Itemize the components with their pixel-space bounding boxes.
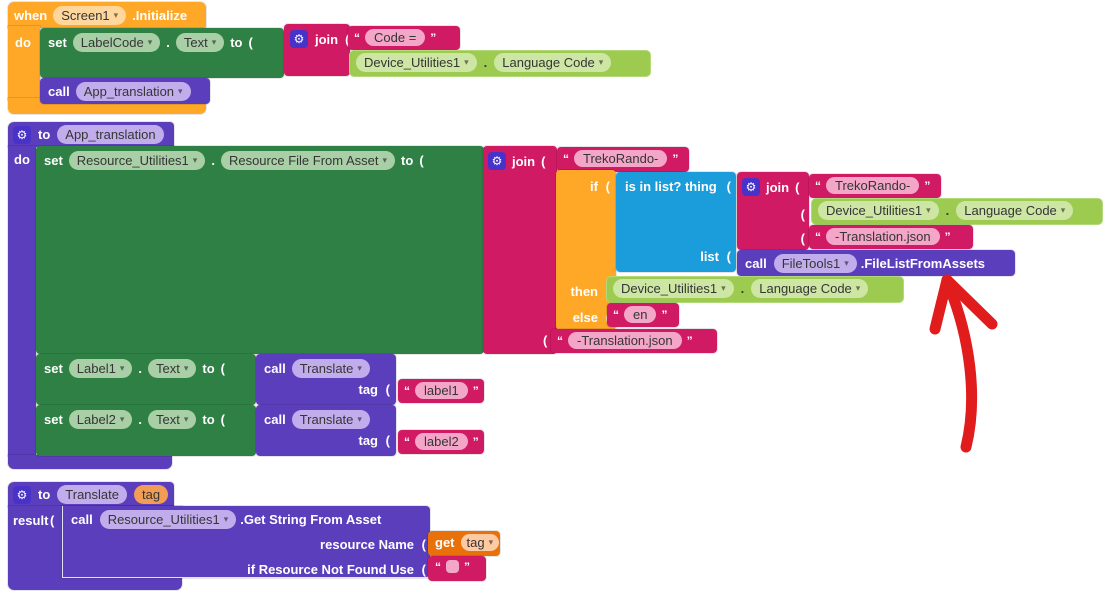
when-label: when: [14, 9, 47, 22]
set-label: set: [44, 362, 63, 375]
string-value[interactable]: Code =: [365, 29, 425, 46]
chevron-down-icon: ▾: [178, 87, 183, 96]
component-dropdown[interactable]: Resource_Utilities1 ▾: [100, 510, 237, 529]
procedure-dropdown[interactable]: App_translation ▾: [76, 82, 191, 101]
dot-separator: .: [741, 281, 745, 296]
to-label: to: [202, 413, 214, 426]
chevron-down-icon: ▾: [464, 58, 469, 67]
chevron-down-icon: ▾: [489, 538, 494, 547]
chevron-down-icon: ▾: [224, 515, 229, 524]
do-label: do: [14, 153, 30, 166]
mutator-gear-icon[interactable]: ⚙: [488, 152, 506, 170]
property-dropdown[interactable]: Language Code ▾: [751, 279, 868, 298]
socket-paren: (: [801, 208, 805, 221]
component-dropdown[interactable]: Device_Utilities1 ▾: [356, 53, 477, 72]
mutator-gear-icon[interactable]: ⚙: [13, 126, 31, 144]
socket-paren: (: [422, 538, 426, 551]
close-quote: ”: [924, 180, 930, 192]
string-en-block[interactable]: “ en ”: [607, 303, 679, 327]
chevron-down-icon: ▾: [193, 156, 198, 165]
dot-separator: .: [484, 55, 488, 70]
property-dropdown[interactable]: Text ▾: [148, 359, 196, 378]
component-dropdown[interactable]: Label2 ▾: [69, 410, 133, 429]
dot-separator: .: [166, 36, 170, 49]
close-quote: ”: [945, 231, 951, 243]
dot-separator: .: [138, 413, 142, 426]
join-block-2[interactable]: ⚙ join (: [483, 146, 557, 354]
set-labelcode-text-block[interactable]: set LabelCode ▾ . Text ▾ to (: [40, 28, 284, 78]
chevron-down-icon: ▾: [383, 156, 388, 165]
component-dropdown[interactable]: Device_Utilities1 ▾: [613, 279, 734, 298]
procedure-app-translation-header[interactable]: ⚙ to App_translation: [8, 122, 174, 147]
dot-separator: .: [946, 203, 950, 218]
set-label: set: [44, 413, 63, 426]
open-quote: “: [435, 561, 441, 573]
mutator-gear-icon[interactable]: ⚙: [742, 178, 760, 196]
procedure-dropdown[interactable]: Translate ▾: [292, 359, 370, 378]
property-dropdown[interactable]: Text ▾: [176, 33, 224, 52]
app-translation-bottom-bar[interactable]: [8, 455, 172, 469]
set-label2-text-block[interactable]: set Label2 ▾ . Text ▾ to (: [36, 405, 256, 456]
socket-paren: (: [541, 155, 545, 168]
chevron-down-icon: ▾: [357, 364, 362, 373]
string-trekorando-block[interactable]: “ TrekoRando- ”: [557, 147, 689, 172]
set-label: set: [44, 154, 63, 167]
open-quote: “: [815, 231, 821, 243]
component-dropdown[interactable]: Resource_Utilities1 ▾: [69, 151, 206, 170]
socket-paren: (: [419, 154, 423, 167]
open-quote: “: [613, 309, 619, 321]
app-translation-do-spine[interactable]: [8, 146, 36, 456]
socket-paren: (: [795, 181, 799, 194]
not-found-arg-label: if Resource Not Found Use: [247, 563, 414, 576]
open-quote: “: [354, 32, 360, 44]
call-label: call: [264, 362, 286, 375]
chevron-down-icon: ▾: [184, 364, 189, 373]
chevron-down-icon: ▾: [148, 38, 153, 47]
call-filelist-from-assets-block[interactable]: call FileTools1 ▾ .FileListFromAssets: [737, 250, 1015, 276]
event-name: .Initialize: [132, 9, 187, 22]
property-dropdown[interactable]: Text ▾: [148, 410, 196, 429]
string-value[interactable]: -Translation.json: [826, 228, 940, 245]
close-quote: ”: [687, 335, 693, 347]
chevron-down-icon: ▾: [120, 364, 125, 373]
string-value[interactable]: TrekoRando-: [574, 150, 667, 167]
socket-paren: (: [50, 514, 54, 527]
procedure-name[interactable]: Translate: [57, 485, 127, 504]
tag-arg-label: tag: [359, 383, 379, 396]
close-quote: ”: [672, 153, 678, 165]
variable-dropdown[interactable]: tag ▾: [461, 534, 500, 551]
join-block-1[interactable]: ⚙ join (: [284, 24, 350, 76]
open-quote: “: [815, 180, 821, 192]
get-tag-block[interactable]: get tag ▾: [428, 531, 500, 556]
string-value[interactable]: label2: [415, 433, 468, 450]
chevron-down-icon: ▾: [844, 259, 849, 268]
device-language-code-getter[interactable]: Device_Utilities1 ▾ . Language Code ▾: [812, 199, 1102, 224]
to-label: to: [202, 362, 214, 375]
socket-paren: (: [249, 36, 253, 49]
socket-paren: (: [543, 334, 547, 347]
if-label: if: [590, 180, 598, 193]
to-label: to: [38, 128, 50, 141]
device-language-code-getter[interactable]: Device_Utilities1 ▾ . Language Code ▾: [607, 277, 903, 302]
property-dropdown[interactable]: Language Code ▾: [494, 53, 611, 72]
call-translate-block[interactable]: call Translate ▾ tag (: [256, 354, 396, 405]
chevron-down-icon: ▾: [856, 284, 861, 293]
else-label: else: [573, 311, 598, 324]
to-label: to: [38, 488, 50, 501]
method-name: .FileListFromAssets: [861, 257, 985, 270]
socket-paren: (: [221, 362, 225, 375]
component-dropdown[interactable]: FileTools1 ▾: [774, 254, 857, 273]
close-quote: ”: [473, 436, 479, 448]
mutator-gear-icon[interactable]: ⚙: [13, 486, 31, 504]
socket-paren: (: [801, 232, 805, 245]
string-value[interactable]: TrekoRando-: [826, 177, 919, 194]
procedure-name[interactable]: App_translation: [57, 125, 163, 144]
blocks-workspace: when Screen1 ▾ .Initialize do set LabelC…: [0, 0, 1104, 592]
join-block-3[interactable]: ⚙ join ( ( (: [737, 172, 809, 250]
component-dropdown[interactable]: Device_Utilities1 ▾: [818, 201, 939, 220]
string-value[interactable]: -Translation.json: [568, 332, 682, 349]
chevron-down-icon: ▾: [120, 415, 125, 424]
set-label: set: [48, 36, 67, 49]
string-translation-json-block[interactable]: “ -Translation.json ”: [551, 329, 717, 353]
join-label: join: [766, 181, 789, 194]
do-label: do: [15, 36, 31, 49]
socket-paren: (: [727, 180, 731, 193]
component-dropdown[interactable]: LabelCode ▾: [73, 33, 160, 52]
is-in-list-block[interactable]: is in list? thing ( list (: [616, 172, 736, 272]
method-name: .Get String From Asset: [240, 513, 381, 526]
parameter-tag[interactable]: tag: [134, 485, 168, 504]
dot-separator: .: [211, 154, 215, 167]
socket-paren: (: [221, 413, 225, 426]
device-language-code-getter[interactable]: Device_Utilities1 ▾ . Language Code ▾: [350, 51, 650, 76]
socket-paren: (: [422, 563, 426, 576]
open-quote: “: [557, 335, 563, 347]
get-label: get: [435, 536, 455, 549]
property-dropdown[interactable]: Language Code ▾: [956, 201, 1073, 220]
chevron-down-icon: ▾: [114, 11, 119, 20]
call-get-string-from-asset-block[interactable]: call Resource_Utilities1 ▾ .Get String F…: [62, 506, 430, 578]
join-label: join: [512, 155, 535, 168]
empty-string-field[interactable]: [446, 560, 459, 573]
chevron-down-icon: ▾: [212, 38, 217, 47]
screen-dropdown[interactable]: Screen1 ▾: [53, 6, 126, 25]
close-quote: ”: [473, 385, 479, 397]
to-label: to: [230, 36, 242, 49]
list-label: list: [700, 250, 719, 263]
procedure-dropdown[interactable]: Translate ▾: [292, 410, 370, 429]
resource-name-arg-label: resource Name: [320, 538, 414, 551]
call-app-translation-block[interactable]: call App_translation ▾: [40, 78, 210, 104]
chevron-down-icon: ▾: [1061, 206, 1066, 215]
socket-paren: (: [386, 383, 390, 396]
chevron-down-icon: ▾: [599, 58, 604, 67]
string-label1-block[interactable]: “ label1 ”: [398, 379, 484, 403]
dot-separator: .: [138, 362, 142, 375]
property-dropdown[interactable]: Resource File From Asset ▾: [221, 151, 395, 170]
set-resource-file-block[interactable]: set Resource_Utilities1 ▾ . Resource Fil…: [36, 146, 484, 354]
chevron-down-icon: ▾: [357, 415, 362, 424]
is-in-list-label: is in list? thing: [625, 180, 717, 193]
string-value[interactable]: en: [624, 306, 656, 323]
call-label: call: [48, 85, 70, 98]
socket-paren: (: [386, 434, 390, 447]
close-quote: ”: [430, 32, 436, 44]
string-value[interactable]: label1: [415, 382, 468, 399]
call-translate-block[interactable]: call Translate ▾ tag (: [256, 405, 396, 456]
when-screen1-initialize-block[interactable]: when Screen1 ▾ .Initialize: [8, 2, 206, 28]
set-label1-text-block[interactable]: set Label1 ▾ . Text ▾ to (: [36, 354, 256, 405]
socket-paren: (: [727, 250, 731, 263]
call-label: call: [264, 413, 286, 426]
open-quote: “: [563, 153, 569, 165]
empty-string-block[interactable]: “ ”: [428, 556, 486, 581]
open-quote: “: [404, 436, 410, 448]
string-translation-json-block[interactable]: “ -Translation.json ”: [809, 225, 973, 249]
call-label: call: [745, 257, 767, 270]
to-label: to: [401, 154, 413, 167]
chevron-down-icon: ▾: [926, 206, 931, 215]
chevron-down-icon: ▾: [721, 284, 726, 293]
mutator-gear-icon[interactable]: ⚙: [290, 30, 308, 48]
socket-paren: (: [606, 180, 610, 193]
join-label: join: [315, 33, 338, 46]
close-quote: ”: [464, 561, 470, 573]
open-quote: “: [404, 385, 410, 397]
call-label: call: [71, 513, 93, 526]
result-label: result: [13, 514, 48, 527]
close-quote: ”: [661, 309, 667, 321]
component-dropdown[interactable]: Label1 ▾: [69, 359, 133, 378]
string-code-block[interactable]: “ Code = ”: [348, 26, 460, 50]
procedure-translate-header[interactable]: ⚙ to Translate tag: [8, 482, 174, 507]
tag-arg-label: tag: [359, 434, 379, 447]
then-label: then: [571, 285, 598, 298]
chevron-down-icon: ▾: [184, 415, 189, 424]
string-label2-block[interactable]: “ label2 ”: [398, 430, 484, 454]
string-trekorando-block[interactable]: “ TrekoRando- ”: [809, 174, 941, 198]
